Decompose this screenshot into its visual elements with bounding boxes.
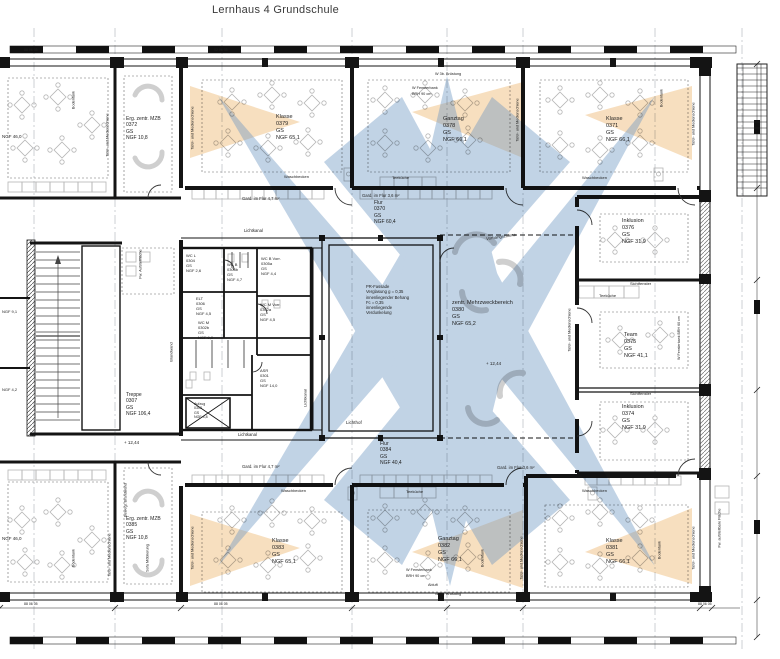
room-label-treppe: Treppe0307GSNGF 106,4 xyxy=(126,392,150,417)
room-label-inklusion-bottom: Inklusion0374GSNGF 31,9 xyxy=(622,404,646,432)
annotation-36: Abluft xyxy=(428,583,438,588)
facade-note-line: innenliegender Behang xyxy=(366,295,409,300)
annotation-51: 88 06 05 xyxy=(24,602,38,606)
annotation-43: Fw. Aufstellfläche xyxy=(139,249,144,278)
annotation-8: Gard. im Flur 3,6 m² xyxy=(497,465,534,470)
room-rarea: NGF 66,1 xyxy=(606,559,630,566)
room-rlvl: GS xyxy=(622,232,646,239)
room-rname: Klasse xyxy=(606,116,630,123)
annotation-16: Tafel- und Medienschiene xyxy=(191,106,196,149)
room-rarea: NGF 41,1 xyxy=(624,353,648,360)
sightline-overlays xyxy=(190,76,692,588)
room-rnum: 0371 xyxy=(606,123,630,130)
annotation-47: NGF 9,1 xyxy=(2,310,17,315)
annotation-21: Tafel- und Medienschiene xyxy=(520,536,525,579)
room-rarea: NGF 40,4 xyxy=(380,460,402,466)
annotation-10: Waschbecken xyxy=(582,176,607,181)
room-rname: Ganztag xyxy=(443,116,467,123)
floorplan-stage: Lernhaus 4 Grundschule Klasse0379GSNGF 6… xyxy=(0,0,780,659)
room-rarea: NGF 14,0 xyxy=(260,383,277,388)
room-rname: Klasse xyxy=(606,538,630,545)
annotation-7: Gard. im Flur 4,7 m² xyxy=(242,464,279,469)
annotation-6: Gard. im Flur 3,6 m² xyxy=(362,193,399,198)
room-rnum: 0381 xyxy=(606,545,630,552)
facade-note-line: Verglasung g = 0,35 xyxy=(366,289,409,294)
room-label-flur-top: Flur0370GSNGF 60,4 xyxy=(374,200,396,225)
facade-note-line: Verdunkelung xyxy=(366,310,409,315)
room-rnum: 0376 xyxy=(622,225,646,232)
annotation-48: NGF 4,2 xyxy=(2,388,17,393)
room-rarea: NGF 65,2 xyxy=(452,321,513,328)
room-rarea: NGF 4,5 xyxy=(196,311,211,316)
annotation-35: BRH 90 cm xyxy=(406,574,425,579)
room-rlvl: GS xyxy=(606,130,630,137)
annotation-19: Tafel- und Medienschiene xyxy=(692,102,697,145)
annotation-29: Bodentank xyxy=(72,549,77,567)
room-label-wc-l: WC L0304GSNGF 2,6 xyxy=(186,253,201,273)
room-rarea: NGF 4,7 xyxy=(227,277,242,282)
room-rlvl: GS xyxy=(272,552,296,559)
room-label-klasse-top-mid: Klasse0379GSNGF 65,1 xyxy=(276,114,300,142)
annotation-23: Tafel- und Medienschiene xyxy=(191,526,196,569)
room-label-erg-mzb-bottom: Erg. zentr. MZB0385GSNGF 10,8 xyxy=(126,516,161,541)
annotation-52: 88 06 05 xyxy=(214,602,228,606)
annotation-33: W 3b. Brüstung xyxy=(435,592,461,597)
annotation-50: 88 06 05 xyxy=(24,48,38,52)
annotation-3: Lichthof xyxy=(346,420,362,425)
annotation-27: Bodentank xyxy=(481,549,486,567)
annotation-9: Waschbecken xyxy=(284,175,309,180)
annotation-26: Bodentank xyxy=(660,89,665,107)
room-label-klasse-bottom-mid: Klasse0383GSNGF 65,1 xyxy=(272,538,296,566)
room-rarea: NGF 4,4 xyxy=(261,271,281,276)
annotation-17: Tafel- und Medienschiene xyxy=(106,113,111,156)
room-rarea: NGF 10,8 xyxy=(126,135,161,141)
room-rarea: NGF 10,8 xyxy=(126,535,161,541)
room-label-ganztag-bottom: Ganztag0382GSNGF 66,1 xyxy=(438,536,462,564)
annotation-34: W Fensterbank xyxy=(406,568,432,573)
room-rlvl: GS xyxy=(452,314,513,321)
room-rnum: 0375 xyxy=(624,339,648,346)
annotation-2: Lichtkanal xyxy=(304,389,309,407)
annotation-0: Lichtkanal xyxy=(244,228,263,233)
room-rarea: NGF 66,1 xyxy=(606,137,630,144)
annotation-40: Sofa Möblierung xyxy=(146,544,151,572)
annotation-30: W 3b. Brüstung xyxy=(435,72,461,77)
room-rnum: 0378 xyxy=(443,123,467,130)
room-label-ganztag-top: Ganztag0378GSNGF 66,1 xyxy=(443,116,467,144)
room-rarea: NGF 66,1 xyxy=(438,557,462,564)
room-rname: Inklusion xyxy=(622,404,646,411)
room-rlvl: GS xyxy=(606,552,630,559)
annotation-13: Teeküche xyxy=(392,176,409,181)
annotation-22: Tafel- und Medienschiene xyxy=(692,526,697,569)
annotation-45: NGF 46,0 xyxy=(2,134,22,139)
room-rarea: NGF 106,4 xyxy=(126,411,150,417)
annotation-37: W Fensterbank BRH 60 cm xyxy=(677,316,681,360)
annotation-11: Waschbecken xyxy=(281,489,306,494)
annotation-18: Tafel- und Medienschiene xyxy=(516,98,521,141)
room-rarea: NGF 65,1 xyxy=(276,135,300,142)
room-rarea: NGF 31,9 xyxy=(622,239,646,246)
room-label-erg-mzb-top: Erg. zentr. MZB0372GSNGF 10,8 xyxy=(126,116,161,141)
room-rnum: 0374 xyxy=(622,411,646,418)
room-label-elt: ELT0306GSNGF 4,5 xyxy=(196,296,211,316)
room-rlvl: GS xyxy=(624,346,648,353)
annotation-24: Tafel- und Medienschiene xyxy=(108,533,113,576)
annotation-44: Fw. aufstellbare Fläche xyxy=(718,508,723,547)
room-rname: Klasse xyxy=(276,114,300,121)
room-rlvl: GS xyxy=(438,550,462,557)
room-label-asr: ASR0301GSNGF 14,0 xyxy=(260,368,277,388)
room-label-wc-m-vorr: WC M Vorr.0302aGSNGF 4,5 xyxy=(260,302,280,322)
annotation-39: Sichtfenster xyxy=(630,392,651,397)
stair-treads xyxy=(36,252,80,420)
room-rnum: 0382 xyxy=(438,543,462,550)
room-rarea: NGF 60,4 xyxy=(374,219,396,225)
room-rlvl: GS xyxy=(276,128,300,135)
room-label-wc-m: WC M0302bGSNGF 9,0 xyxy=(198,320,213,340)
annotation-25: Bodentank xyxy=(72,91,77,109)
room-label-aufzug: Aufzug0303GSNGF 4,8 xyxy=(194,402,208,420)
room-rarea: NGF 9,0 xyxy=(198,335,213,340)
annotation-49: 02 06 05 xyxy=(214,48,228,52)
annotation-42: Brandwand xyxy=(170,342,175,361)
annotation-5: Gard. im Flur 4,7 m² xyxy=(242,196,279,201)
room-label-inklusion-top: Inklusion0376GSNGF 31,9 xyxy=(622,218,646,246)
room-rnum: 0379 xyxy=(276,121,300,128)
room-rname: Team xyxy=(624,332,648,339)
annotation-31: W Fensterbank xyxy=(412,86,438,91)
room-label-klasse-top-right: Klasse0371GSNGF 66,1 xyxy=(606,116,630,144)
room-rlvl: GS xyxy=(443,130,467,137)
drawing-title: Lernhaus 4 Grundschule xyxy=(212,4,339,16)
annotation-32: BRH 90 cm xyxy=(412,92,431,97)
room-rlvl: GS xyxy=(622,418,646,425)
room-rarea: NGF 2,6 xyxy=(186,268,201,273)
annotation-46: NGF 46,0 xyxy=(2,536,22,541)
annotation-15: Teeküche xyxy=(406,490,423,495)
room-rarea: NGF 31,9 xyxy=(622,425,646,432)
room-rarea: NGF 66,1 xyxy=(443,137,467,144)
sightline-beams xyxy=(218,76,655,586)
annotation-28: Bodentank xyxy=(658,541,663,559)
room-rarea: NGF 4,8 xyxy=(194,415,208,419)
room-label-flur-bottom: Flur0384GSNGF 40,4 xyxy=(380,441,402,466)
annotation-20: Tafel- und Medienschiene xyxy=(568,308,573,351)
annotation-14: Teeküche xyxy=(599,294,616,299)
level-marker-1: + 12,44 xyxy=(124,440,139,445)
annotation-53: 88 06 05 xyxy=(698,602,712,606)
room-label-mehrzweckbereich: zentr. Mehrzweckbereich0380GSNGF 65,2 xyxy=(452,300,513,328)
annotation-12: Waschbecken xyxy=(582,489,607,494)
room-rname: Inklusion xyxy=(622,218,646,225)
room-rname: Ganztag xyxy=(438,536,462,543)
room-label-wc-b: WC B0305bGSNGF 4,7 xyxy=(227,262,242,282)
annotation-38: Sichtfenster xyxy=(630,282,651,287)
room-rnum: 0380 xyxy=(452,307,513,314)
facade-note: PR-FassadeVerglasung g = 0,35innenliegen… xyxy=(366,284,409,316)
annotation-1: Lichtkanal xyxy=(238,432,257,437)
room-rnum: 0383 xyxy=(272,545,296,552)
room-rarea: NGF 65,1 xyxy=(272,559,296,566)
room-rname: Klasse xyxy=(272,538,296,545)
room-rarea: NGF 4,5 xyxy=(260,317,280,322)
level-marker-0: + 12,44 xyxy=(486,361,501,366)
annotation-41: Bewegl. Brandwand xyxy=(124,483,129,517)
room-label-wc-b-vorr: WC B Vorr.0305aGSNGF 4,4 xyxy=(261,256,281,276)
room-rname: zentr. Mehrzweckbereich xyxy=(452,300,513,307)
room-label-team: Team0375GSNGF 41,1 xyxy=(624,332,648,360)
room-label-klasse-bottom-right: Klasse0381GSNGF 66,1 xyxy=(606,538,630,566)
